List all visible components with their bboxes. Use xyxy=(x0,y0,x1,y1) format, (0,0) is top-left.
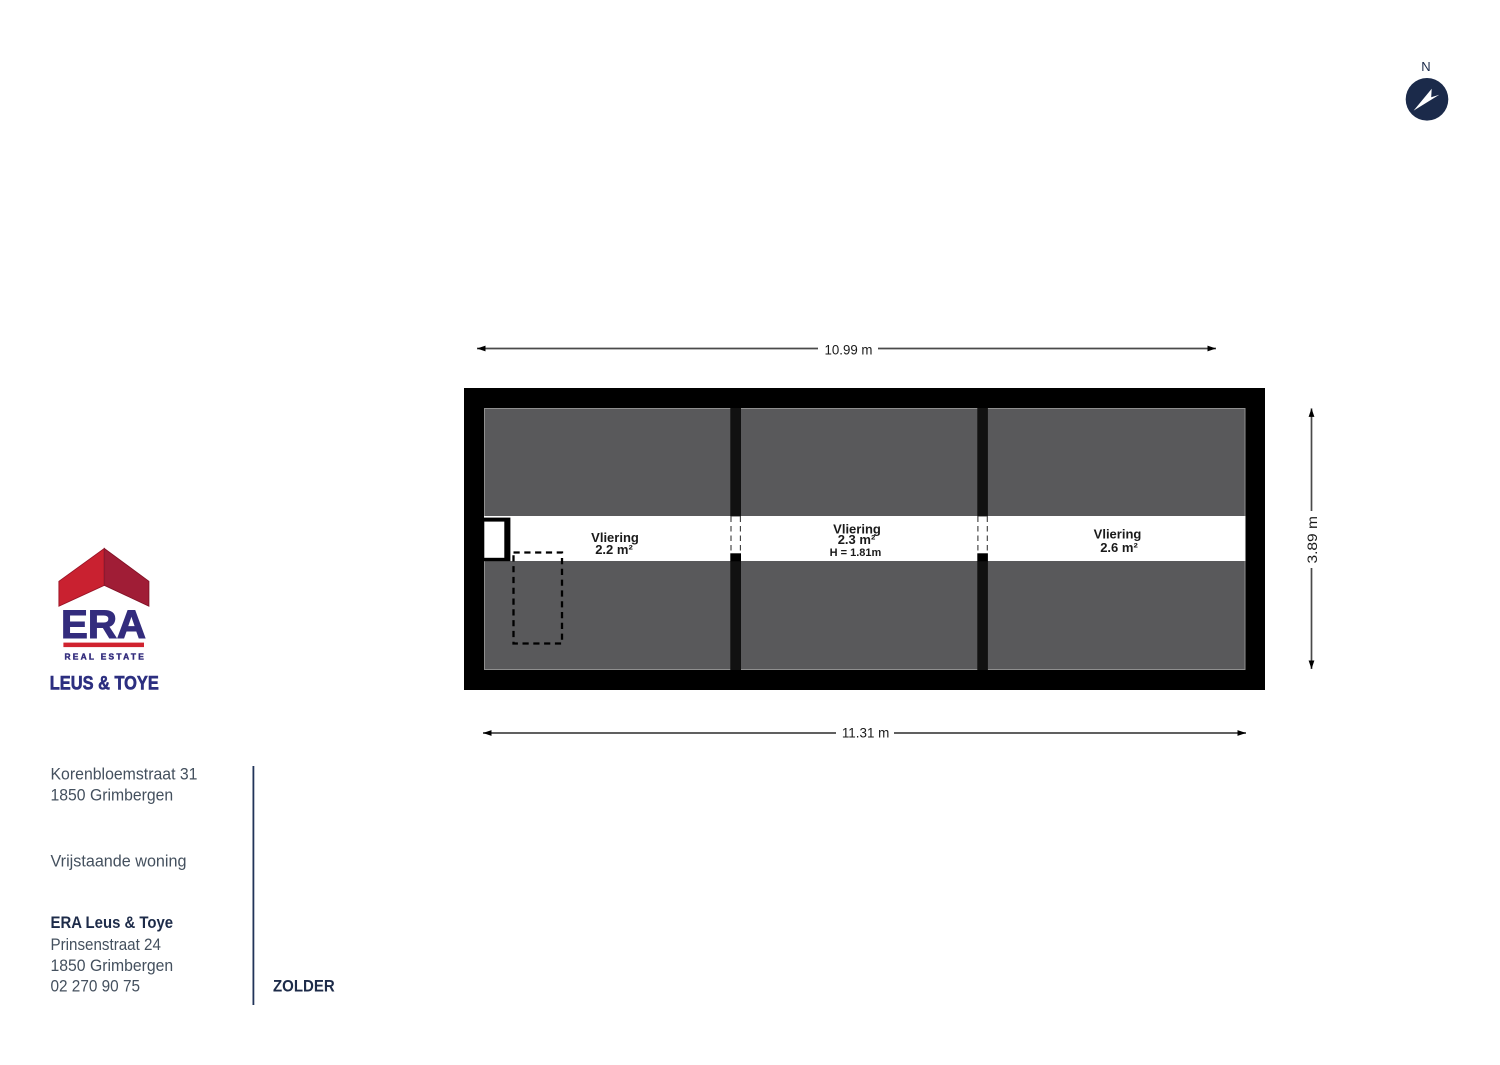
svg-text:11.31 m: 11.31 m xyxy=(842,726,890,741)
svg-text:2.6 m²: 2.6 m² xyxy=(1100,540,1138,555)
svg-text:Vrijstaande woning: Vrijstaande woning xyxy=(51,852,187,871)
svg-text:ERA Leus & Toye: ERA Leus & Toye xyxy=(51,913,174,932)
svg-text:ERA: ERA xyxy=(61,603,146,647)
svg-text:1850 Grimbergen: 1850 Grimbergen xyxy=(51,786,174,805)
svg-text:Korenbloemstraat 31: Korenbloemstraat 31 xyxy=(51,765,198,784)
svg-text:3.89 m: 3.89 m xyxy=(1305,516,1320,564)
svg-text:LEUS & TOYE: LEUS & TOYE xyxy=(50,673,159,694)
svg-text:REAL ESTATE: REAL ESTATE xyxy=(65,651,146,661)
svg-text:2.2 m²: 2.2 m² xyxy=(595,542,633,557)
svg-text:Prinsenstraat 24: Prinsenstraat 24 xyxy=(51,935,161,954)
svg-text:ZOLDER: ZOLDER xyxy=(273,977,335,996)
svg-text:2.3 m²: 2.3 m² xyxy=(838,532,876,547)
svg-text:02 270 90 75: 02 270 90 75 xyxy=(51,977,141,996)
svg-text:N: N xyxy=(1421,59,1430,74)
svg-text:1850 Grimbergen: 1850 Grimbergen xyxy=(51,956,174,975)
svg-text:10.99 m: 10.99 m xyxy=(825,343,873,358)
svg-text:H = 1.81m: H = 1.81m xyxy=(830,547,882,559)
